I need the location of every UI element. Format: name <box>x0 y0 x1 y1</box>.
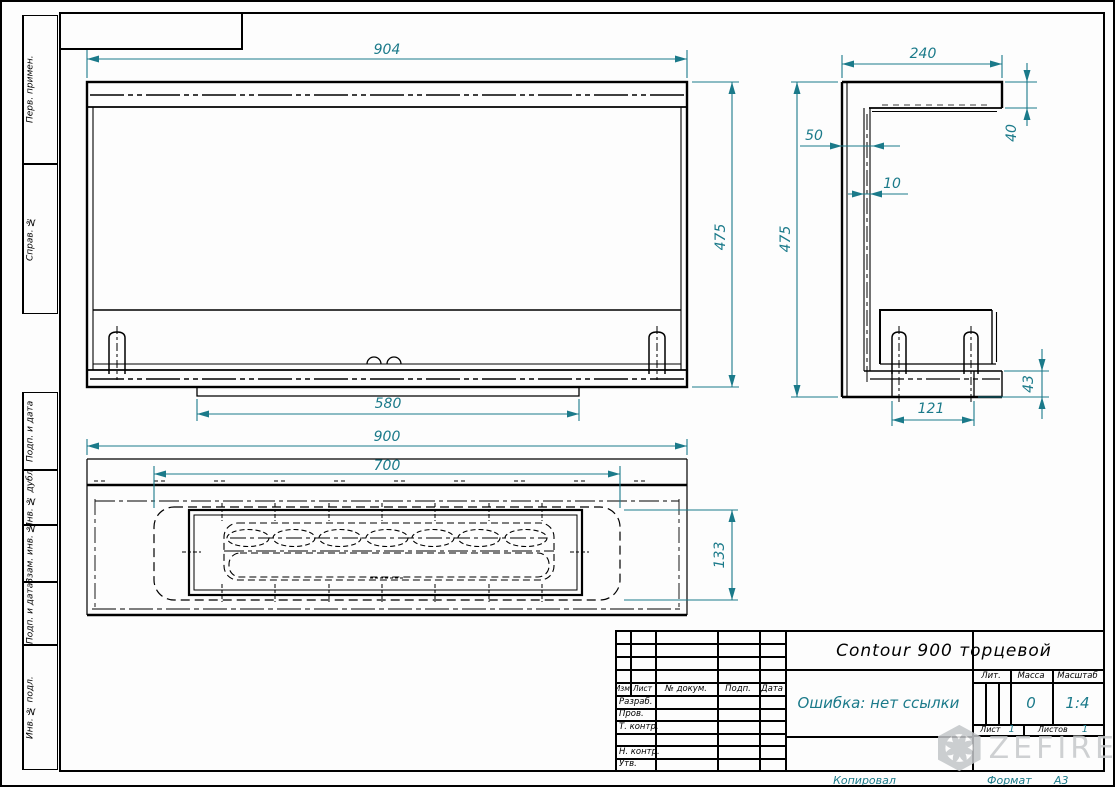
mass-value: 0 <box>1010 682 1052 724</box>
row-tkontr: Т. контр. <box>617 720 657 733</box>
format-label: Формат <box>987 774 1032 787</box>
corner-stamp-box <box>59 12 243 50</box>
watermark-text: ZEFIRE <box>989 731 1115 766</box>
row-nkontr: Н. контр. <box>617 745 657 758</box>
margin-cell-podp-data-2: Подп. и дата <box>22 582 58 645</box>
margin-cell-inv-podl: Инв. № подл. <box>22 645 58 770</box>
margin-cell-perv-primen: Перв. примен. <box>22 15 58 164</box>
drawing-sheet: Перв. примен. Справ. № Подп. и дата Инв.… <box>0 0 1115 787</box>
col-podp: Подп. <box>717 682 759 695</box>
margin-label: Взам. инв. № <box>23 526 37 581</box>
margin-cell-sprav-no: Справ. № <box>22 164 58 314</box>
col-dokum: № докум. <box>655 682 717 695</box>
margin-cell-vzam-inv: Взам. инв. № <box>22 525 58 582</box>
zefire-watermark: ZEFIRE <box>938 722 1115 774</box>
scale-value: 1:4 <box>1052 682 1103 724</box>
margin-cell-inv-dubl: Инв. № дубл. <box>22 470 58 525</box>
margin-label: Справ. № <box>23 165 37 313</box>
margin-cell-podp-data-1: Подп. и дата <box>22 392 58 470</box>
margin-label: Перв. примен. <box>23 16 37 163</box>
col-izm: Изм. <box>617 682 630 695</box>
scale-label: Масштаб <box>1052 669 1103 682</box>
document-title: Contour 900 торцевой <box>785 632 1103 669</box>
format-value: А3 <box>1054 774 1069 787</box>
row-utv: Утв. <box>617 758 657 770</box>
margin-label: Подп. и дата <box>23 583 37 644</box>
mass-label: Масса <box>1010 669 1052 682</box>
margin-label: Подп. и дата <box>23 393 37 469</box>
col-list: Лист <box>630 682 655 695</box>
copied-label: Копировал <box>817 774 912 787</box>
row-razrab: Разраб. <box>617 695 657 708</box>
zefire-logo-icon <box>938 723 981 773</box>
margin-label: Инв. № подл. <box>23 646 37 769</box>
row-prov: Пров. <box>617 708 657 720</box>
col-data: Дата <box>759 682 785 695</box>
margin-label: Инв. № дубл. <box>23 471 37 524</box>
lit-label: Лит. <box>972 669 1010 682</box>
